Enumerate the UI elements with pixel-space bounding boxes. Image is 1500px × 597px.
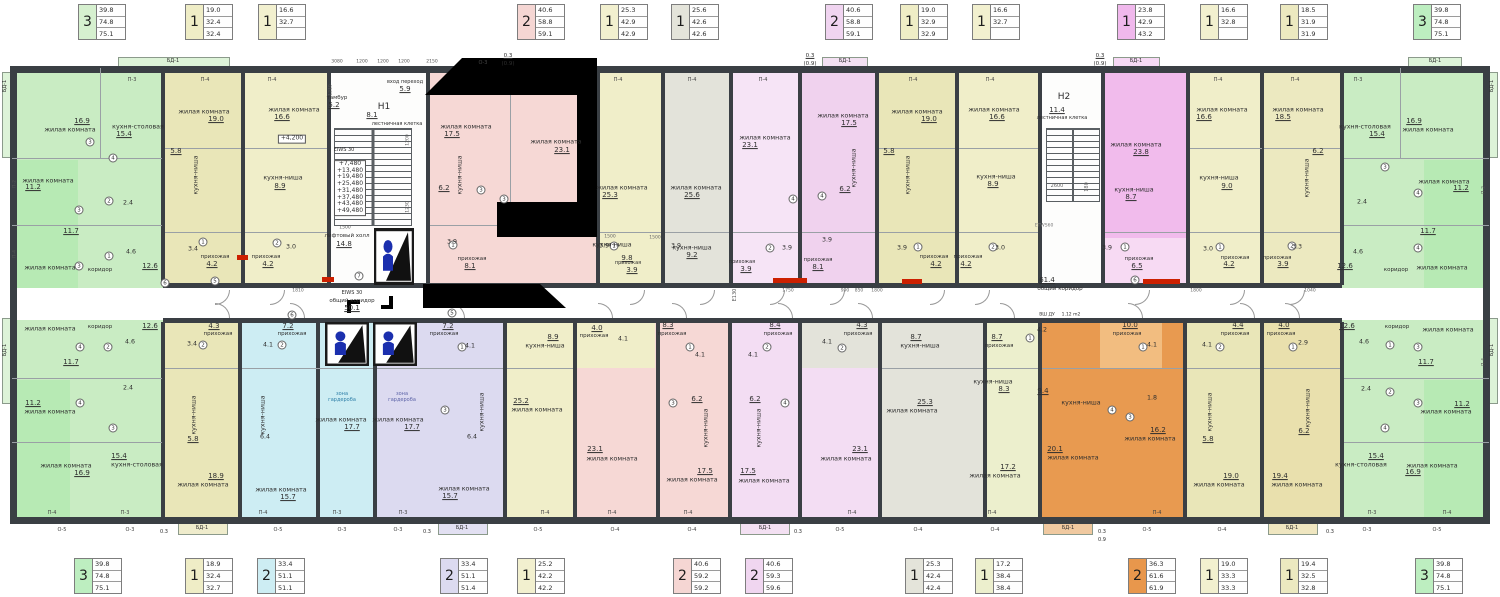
- apartment-area-value: 42.9: [619, 17, 647, 29]
- plan-label: Е130: [733, 289, 739, 302]
- apartment-area-value: 59.6: [764, 582, 792, 593]
- plan-label: прихожая: [764, 331, 793, 337]
- apartment-rooms-count: 2: [441, 559, 459, 593]
- partition-wall: [245, 232, 327, 233]
- apartment-areas: 39.874.875.1: [93, 559, 121, 593]
- plan-label: 17.7: [344, 424, 360, 432]
- room: [1185, 320, 1262, 523]
- plan-label: жилая комната: [586, 455, 637, 462]
- plan-label: П-4: [684, 511, 693, 517]
- apartment-areas: 40.658.859.1: [536, 5, 564, 39]
- plan-label: П-3: [128, 78, 137, 84]
- plan-label: 6.5: [1131, 263, 1142, 271]
- wall: [241, 68, 245, 285]
- apartment-rooms-count: 3: [1416, 559, 1434, 593]
- plan-label: О-5: [1143, 528, 1152, 534]
- apartment-area-value: 33.3: [1219, 571, 1247, 583]
- plan-label: О-4: [914, 528, 923, 534]
- partition-wall: [430, 225, 596, 226]
- axis-number-bubble: 4: [1381, 424, 1390, 433]
- plan-label: П-4: [988, 511, 997, 517]
- plan-label: 0.9: [1098, 538, 1106, 544]
- plan-label: 8.9: [987, 181, 998, 189]
- plan-label: 850: [855, 288, 864, 293]
- plan-label: 11.7: [1418, 359, 1434, 367]
- plan-label: лестничная клетка: [1037, 116, 1088, 122]
- plan-label: 12.6: [1339, 323, 1355, 331]
- apartment-rooms-count: 1: [672, 5, 690, 39]
- plan-label: П-4: [614, 78, 623, 84]
- axis-number-bubble: 1: [914, 243, 923, 252]
- floor-plan-page: 3432131233112441211234465765642432213132…: [0, 0, 1500, 597]
- apartment-badge: 339.874.875.1: [78, 4, 126, 40]
- plan-label: 3.4: [187, 340, 197, 347]
- axis-number-bubble: 1: [105, 252, 114, 261]
- apartment-area-value: [991, 28, 1019, 39]
- plan-label: БД-1: [1490, 80, 1496, 92]
- partition-wall: [600, 232, 661, 233]
- plan-label: кухня-столовая: [1335, 461, 1387, 468]
- plan-label: 2.4: [123, 199, 133, 206]
- partition-wall: [12, 158, 162, 159]
- plan-label: кухня-ниша: [1061, 399, 1100, 406]
- plan-label: П-4: [986, 78, 995, 84]
- plan-label: 5.8: [883, 148, 894, 156]
- apartment-rooms-count: 3: [79, 5, 97, 39]
- plan-label: гардероба: [388, 398, 416, 404]
- plan-label: 19.0: [208, 116, 224, 124]
- plan-label: кухня-ниша: [1206, 392, 1213, 431]
- plan-label: О-3: [1363, 528, 1372, 534]
- axis-number-bubble: 3: [75, 262, 84, 271]
- wall: [878, 322, 882, 521]
- plan-label: 25.6: [684, 192, 700, 200]
- apartment-area-value: 19.4: [1299, 559, 1327, 571]
- plan-label: 4.2: [206, 261, 217, 269]
- plan-label: 6.4: [260, 433, 270, 440]
- plan-label: 11.2: [25, 184, 41, 192]
- apartment-rooms-count: 2: [746, 559, 764, 593]
- partition-wall: [245, 148, 327, 149]
- plan-label: 6.4: [467, 433, 477, 440]
- wall: [1183, 322, 1187, 521]
- plan-label: 1800: [871, 288, 882, 293]
- wall: [1186, 68, 1190, 285]
- apartment-area-value: 16.6: [277, 5, 305, 17]
- plan-label: (0.9): [803, 61, 816, 67]
- plan-label: жилая комната: [1047, 454, 1098, 461]
- room: [1262, 320, 1342, 523]
- plan-label: 990: [841, 288, 850, 293]
- wall: [1483, 66, 1490, 524]
- axis-number-bubble: 3: [1381, 163, 1390, 172]
- partition-wall: [12, 442, 162, 443]
- apartment-area-value: 19.0: [204, 5, 232, 17]
- plan-label: 8.7: [991, 334, 1002, 342]
- apartment-area-value: 74.8: [1432, 17, 1460, 29]
- axis-number-bubble: 6: [288, 311, 297, 320]
- plan-label: П-4: [1443, 511, 1452, 517]
- plan-label: 16.6: [274, 114, 290, 122]
- plan-label: жилая комната: [1271, 481, 1322, 488]
- apartment-badge: 240.659.359.6: [745, 558, 793, 594]
- plan-label: кухня-ниша: [478, 392, 485, 431]
- apartment-areas: 39.874.875.1: [1434, 559, 1462, 593]
- plan-label: ВШ ДУ: [1039, 312, 1055, 317]
- plan-label: 3.9: [671, 242, 681, 249]
- plan-label: 8.1: [812, 264, 823, 272]
- room: [163, 320, 240, 523]
- apartment-badge: 116.632.8: [1200, 4, 1248, 40]
- plan-label: П-4: [759, 78, 768, 84]
- plan-label: 3.9: [447, 238, 457, 245]
- apartment-badge: 233.451.151.1: [257, 558, 305, 594]
- plan-label: 8.3: [662, 322, 673, 330]
- apartment-area-value: 19.0: [1219, 559, 1247, 571]
- apartment-rooms-count: 1: [1201, 559, 1219, 593]
- apartment-areas: 16.632.8: [1219, 5, 1247, 39]
- plan-label: 8.3: [998, 386, 1009, 394]
- plan-label: прихожая: [1267, 331, 1296, 337]
- plan-label: 12.6: [142, 323, 158, 331]
- doormat-marker: [237, 255, 248, 260]
- plan-label: 8.7: [910, 334, 921, 342]
- apartment-area-value: 40.6: [536, 5, 564, 17]
- elevator-icon: [373, 322, 417, 366]
- plan-label: О-3: [338, 528, 347, 534]
- apartment-area-value: 25.6: [690, 5, 718, 17]
- apartment-area-value: 59.3: [764, 571, 792, 583]
- plan-label: 23.1: [587, 446, 603, 454]
- plan-label: 0.3: [423, 530, 431, 536]
- apartment-area-value: 32.9: [919, 17, 947, 29]
- axis-number-bubble: 1: [1121, 243, 1130, 252]
- plan-label: 9.2: [686, 252, 697, 260]
- apartment-areas: 25.242.242.2: [536, 559, 564, 593]
- apartment-areas: 36.361.661.9: [1147, 559, 1175, 593]
- plan-label: О-4: [688, 528, 697, 534]
- partition-wall: [510, 70, 511, 224]
- apartment-badge: 339.874.875.1: [74, 558, 122, 594]
- apartment-badge: 116.632.7: [258, 4, 306, 40]
- plan-label: (0.9): [1093, 61, 1106, 67]
- plan-label: 1200: [377, 59, 388, 64]
- plan-label: О-4: [611, 528, 620, 534]
- apartment-rooms-count: 1: [1118, 5, 1136, 39]
- axis-number-bubble: 4: [818, 192, 827, 201]
- plan-label: 8.9: [274, 183, 285, 191]
- partition-wall: [882, 368, 983, 369]
- doormat-marker: [902, 279, 922, 284]
- apartment-badge: 119.032.432.4: [185, 4, 233, 40]
- partition-wall: [1344, 225, 1489, 226]
- plan-label: О-3: [479, 61, 488, 67]
- wall: [983, 322, 987, 521]
- plan-label: 8.4: [769, 322, 780, 330]
- plan-label: О-5: [836, 528, 845, 534]
- plan-label: жилая комната: [738, 477, 789, 484]
- plan-label: коридор: [88, 267, 112, 273]
- plan-label: П-4: [688, 78, 697, 84]
- apartment-areas: 40.659.259.2: [692, 559, 720, 593]
- plan-label: 11.7: [1420, 228, 1436, 236]
- apartment-badge: 116.632.7: [972, 4, 1020, 40]
- axis-number-bubble: 6: [161, 279, 170, 288]
- plan-label: 8.7: [1125, 194, 1136, 202]
- plan-label: 11.4: [1049, 107, 1065, 115]
- apartment-area-value: 42.2: [536, 582, 564, 593]
- elevator-icon: [374, 228, 414, 285]
- plan-label: 15.4: [116, 131, 132, 139]
- apartment-areas: 40.659.359.6: [764, 559, 792, 593]
- apartment-rooms-count: 2: [826, 5, 844, 39]
- plan-label: О-5: [274, 528, 283, 534]
- plan-label: П-4: [608, 511, 617, 517]
- plan-label: 1810: [292, 288, 303, 293]
- partition-wall: [1344, 442, 1489, 443]
- plan-label: 17.5: [444, 131, 460, 139]
- plan-label: 20.1: [1047, 446, 1063, 454]
- apartment-area-value: 40.6: [764, 559, 792, 571]
- plan-label: жилая комната: [1402, 126, 1453, 133]
- apartment-area-value: 74.8: [97, 17, 125, 29]
- wall: [10, 66, 1490, 73]
- plan-label: 16.2: [1150, 427, 1166, 435]
- plan-label: кухня-ниша: [755, 408, 762, 447]
- partition-wall: [1264, 232, 1340, 233]
- plan-label: 9.4: [1037, 388, 1048, 396]
- plan-label: 3.9: [1277, 261, 1288, 269]
- wall: [1038, 68, 1042, 285]
- plan-label: 15.4: [1368, 453, 1384, 461]
- plan-label: 4.2: [262, 261, 273, 269]
- plan-label: БД-1: [839, 59, 851, 65]
- plan-label: 1750: [782, 288, 793, 293]
- apartment-areas: 25.642.642.6: [690, 5, 718, 39]
- apartment-area-value: 39.8: [1432, 5, 1460, 17]
- apartment-area-value: 42.6: [690, 17, 718, 29]
- plan-label: 3.9: [822, 236, 832, 243]
- room: [731, 68, 800, 288]
- apartment-badge: 117.238.438.4: [975, 558, 1023, 594]
- plan-label: БД-1: [196, 526, 208, 532]
- plan-label: 3.9: [782, 244, 792, 251]
- apartment-badge: 240.658.859.1: [517, 4, 565, 40]
- plan-label: 6.2: [691, 396, 702, 404]
- wall: [729, 68, 733, 285]
- axis-number-bubble: 1: [199, 238, 208, 247]
- plan-label: 5.8: [187, 436, 198, 444]
- axis-number-bubble: 2: [105, 197, 114, 206]
- plan-label: 8.9: [547, 334, 558, 342]
- apartment-area-value: 51.1: [276, 582, 304, 593]
- plan-label: 6.2: [749, 396, 760, 404]
- plan-label: 4.3: [208, 323, 219, 331]
- plan-label: 0.3: [1326, 530, 1334, 536]
- plan-label: 3.4: [188, 245, 198, 252]
- plan-label: БД-1: [1062, 526, 1074, 532]
- axis-number-bubble: 3: [669, 399, 678, 408]
- plan-label: БД-1: [3, 344, 9, 356]
- axis-number-bubble: 3: [477, 186, 486, 195]
- plan-label: 0.3: [794, 530, 802, 536]
- apartment-area-value: 58.8: [536, 17, 564, 29]
- axis-number-bubble: 1: [1216, 243, 1225, 252]
- plan-label: 6.2: [839, 186, 850, 194]
- plan-label: 4.3: [856, 322, 867, 330]
- plan-label: П-4: [1153, 511, 1162, 517]
- apartment-badge: 125.342.442.4: [905, 558, 953, 594]
- apartment-areas: 40.658.859.1: [844, 5, 872, 39]
- axis-number-bubble: 3: [75, 206, 84, 215]
- wall: [1340, 322, 1344, 521]
- plan-label: EIWS 30: [334, 148, 355, 154]
- plan-label: жилая комната: [1422, 326, 1473, 333]
- apartment-area-value: 32.5: [1299, 571, 1327, 583]
- plan-label: 3.9: [897, 244, 907, 251]
- plan-label: 5.9: [399, 86, 410, 94]
- plan-label: П-4: [909, 78, 918, 84]
- floor-plan-drawing: 3432131233112441211234465765642432213132…: [0, 0, 1500, 597]
- plan-label: 3.9: [740, 266, 751, 274]
- axis-number-bubble: 2: [1216, 343, 1225, 352]
- plan-label: прихожая: [985, 343, 1014, 349]
- apartment-area-value: 17.2: [994, 559, 1022, 571]
- plan-label: 4.2: [960, 261, 971, 269]
- apartment-rooms-count: 1: [1281, 559, 1299, 593]
- plan-label: П-4: [259, 511, 268, 517]
- axis-number-bubble: 3: [1126, 413, 1135, 422]
- plan-label: коридор: [1385, 324, 1409, 330]
- plan-label: 1800: [1190, 288, 1201, 293]
- plan-label: П-4: [1481, 358, 1486, 366]
- plan-label: 23.8: [1133, 149, 1149, 157]
- balcony: [1489, 318, 1498, 404]
- apartment-area-value: 42.4: [924, 571, 952, 583]
- plan-label: 8.1: [366, 112, 377, 120]
- plan-label: прихожая: [580, 333, 609, 339]
- plan-label: 2.4: [123, 384, 133, 391]
- axis-number-bubble: 4: [1108, 406, 1117, 415]
- apartment-badge: 118.531.931.9: [1280, 4, 1328, 40]
- doormat-marker: [773, 278, 807, 283]
- apartment-area-value: [277, 28, 305, 39]
- plan-label: 2.4: [1357, 198, 1367, 205]
- axis-number-bubble: 4: [109, 154, 118, 163]
- plan-label: кухня-ниша: [1199, 174, 1238, 181]
- apartment-areas: 25.342.942.9: [619, 5, 647, 39]
- apartment-area-value: 42.9: [619, 28, 647, 39]
- plan-label: П-2: [12, 180, 17, 188]
- apartment-rooms-count: 1: [518, 559, 536, 593]
- plan-label: 16.6: [989, 114, 1005, 122]
- apartment-rooms-count: 3: [1414, 5, 1432, 39]
- plan-label: жилая комната: [1416, 264, 1467, 271]
- wall: [875, 68, 879, 285]
- apartment-area-value: 42.9: [1136, 17, 1164, 29]
- axis-number-bubble: 5: [211, 277, 220, 286]
- axis-number-bubble: 3: [500, 195, 509, 204]
- plan-label: П-3: [333, 511, 342, 517]
- apartment-area-value: 74.8: [1434, 571, 1462, 583]
- partition-wall: [1264, 368, 1340, 369]
- plan-label: 1500: [604, 234, 615, 239]
- plan-label: 17.5: [841, 120, 857, 128]
- plan-label: 3.3: [1292, 243, 1302, 250]
- apartment-badge: 240.659.259.2: [673, 558, 721, 594]
- room: [575, 320, 655, 368]
- plan-label: 1230: [405, 201, 410, 212]
- plan-label: 1200: [405, 134, 410, 145]
- plan-label: 11.7: [63, 359, 79, 367]
- plan-label: прихожая: [278, 331, 307, 337]
- apartment-areas: 19.032.932.9: [919, 5, 947, 39]
- partition-wall: [1105, 232, 1186, 233]
- plan-label: 5.8: [170, 148, 181, 156]
- plan-label: кухня-ниша: [263, 174, 302, 181]
- plan-label: 5.8: [1202, 436, 1213, 444]
- plan-label: 10.0: [1122, 322, 1138, 330]
- apartment-badge: 123.842.943.2: [1117, 4, 1165, 40]
- apartment-area-value: 61.9: [1147, 582, 1175, 593]
- apartment-area-value: 32.7: [204, 582, 232, 593]
- apartment-areas: 39.874.875.1: [1432, 5, 1460, 39]
- plan-label: 25.3: [917, 399, 933, 407]
- plan-label: 11.2: [1454, 401, 1470, 409]
- staircase: [1046, 128, 1100, 202]
- apartment-area-value: 40.6: [844, 5, 872, 17]
- axis-number-bubble: 3: [1414, 399, 1423, 408]
- plan-label: ETWS60: [1035, 223, 1054, 228]
- plan-label: БД-1: [456, 526, 468, 532]
- plan-label: П-4: [1291, 78, 1300, 84]
- plan-label: прихожая: [204, 331, 233, 337]
- plan-label: 4.2: [1037, 326, 1047, 333]
- plan-label: 50.1: [344, 305, 360, 313]
- plan-label: 2150: [426, 59, 437, 64]
- apartment-badge: 339.874.875.1: [1413, 4, 1461, 40]
- apartment-areas: 16.632.7: [991, 5, 1019, 39]
- plan-label: жилая комната: [530, 138, 581, 145]
- apartment-area-value: 42.6: [690, 28, 718, 39]
- apartment-badge: 119.032.932.9: [900, 4, 948, 40]
- wall: [161, 322, 165, 521]
- plan-label: П-4: [12, 250, 17, 258]
- apartment-area-value: 32.8: [1299, 582, 1327, 593]
- axis-number-bubble: 2: [838, 344, 847, 353]
- axis-number-bubble: 2: [199, 341, 208, 350]
- apartment-area-value: 39.8: [1434, 559, 1462, 571]
- apartment-area-value: 75.1: [93, 582, 121, 593]
- plan-label: О-4: [991, 528, 1000, 534]
- wall: [573, 322, 577, 521]
- axis-number-bubble: 1: [1289, 343, 1298, 352]
- partition-wall: [1344, 378, 1489, 379]
- apartment-areas: 18.932.432.7: [204, 559, 232, 593]
- plan-label: жилая комната: [1420, 408, 1471, 415]
- partition-wall: [507, 368, 573, 369]
- plan-label: 4.1: [618, 335, 628, 342]
- wall: [661, 68, 665, 285]
- plan-label: (0.9): [501, 61, 514, 67]
- plan-label: кухня-ниша: [850, 148, 857, 187]
- partition-wall: [733, 232, 798, 233]
- axis-number-bubble: 4: [789, 195, 798, 204]
- plan-label: БД-1: [1429, 59, 1441, 65]
- apartment-rooms-count: 1: [186, 5, 204, 39]
- plan-label: жилая комната: [24, 408, 75, 415]
- plan-label: кухня-столовая: [111, 461, 163, 468]
